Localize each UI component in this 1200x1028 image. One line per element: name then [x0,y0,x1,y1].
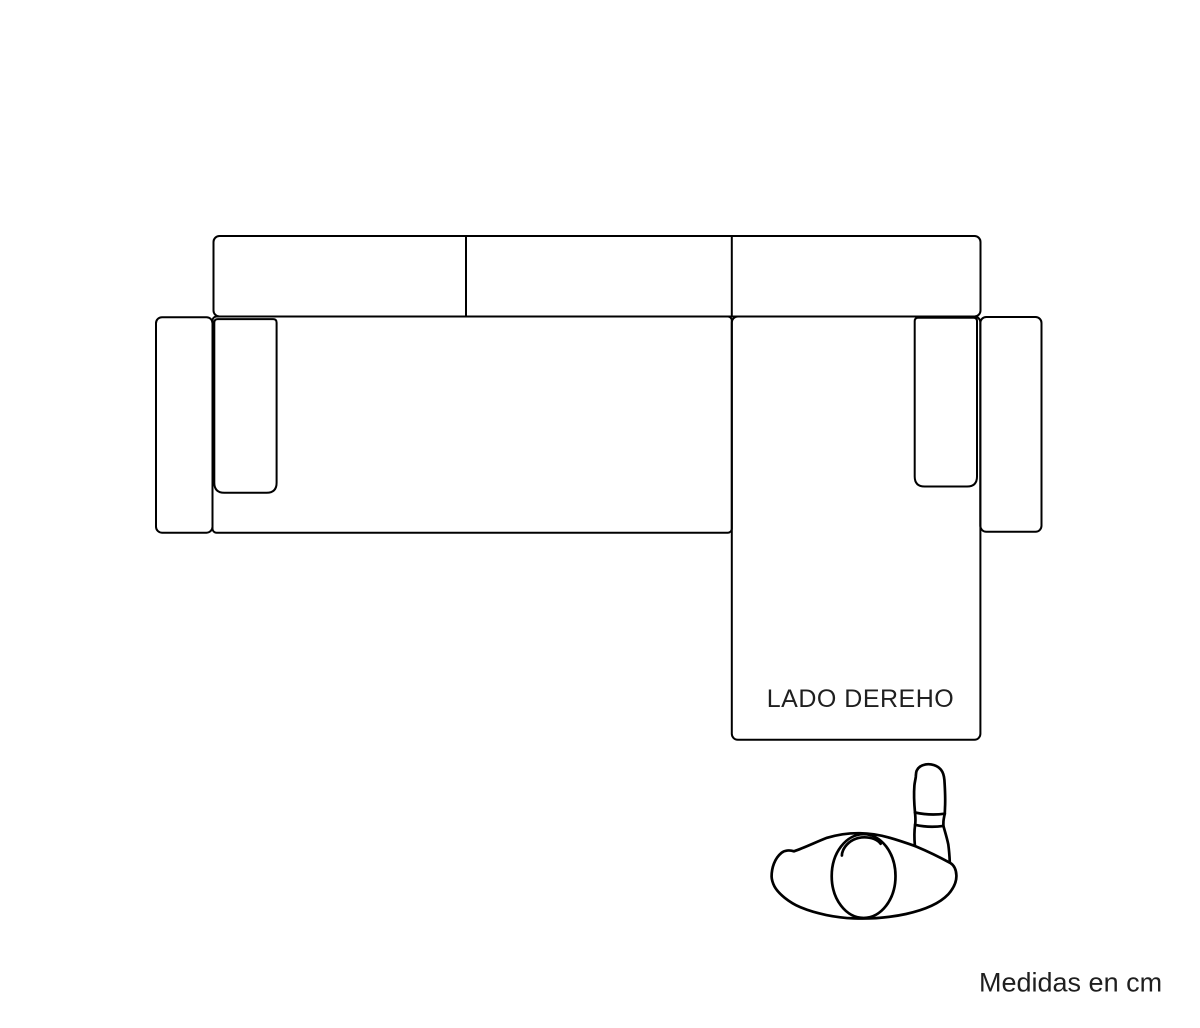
svg-text:LADO DEREHO: LADO DEREHO [767,685,954,713]
svg-text:Medidas en cm: Medidas en cm [979,968,1162,998]
